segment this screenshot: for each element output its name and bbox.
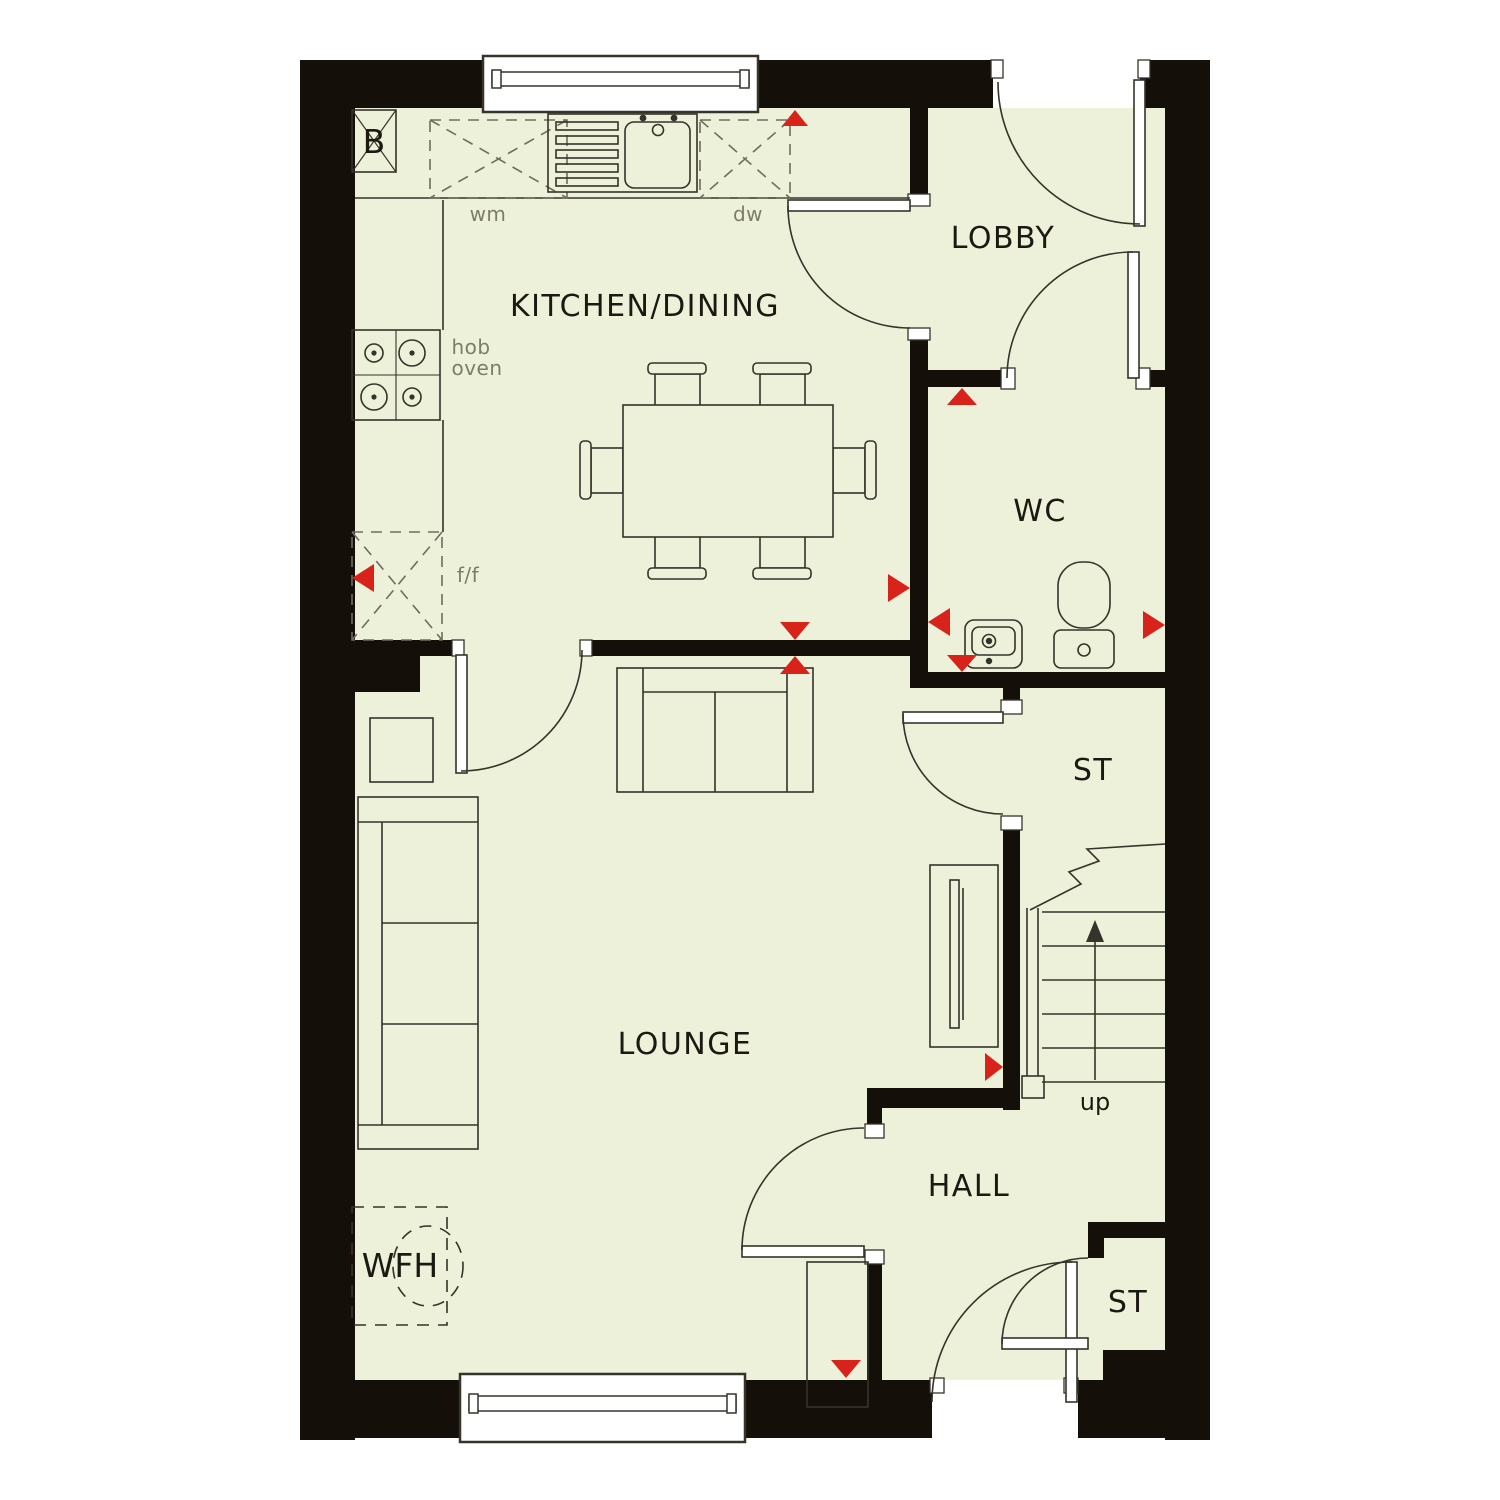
- wall-lobby-wc-a: [910, 370, 1013, 387]
- label-stairs-up: up: [1080, 1088, 1110, 1116]
- kitchen-lounge-door-leaf: [456, 655, 467, 773]
- tap-dot: [671, 115, 676, 120]
- burner-dot: [372, 351, 376, 355]
- label-washing-machine: wm: [470, 202, 507, 226]
- store-hall-door-leaf: [1002, 1338, 1088, 1349]
- wall-kitchen-lounge-a: [355, 640, 462, 656]
- jamb: [1001, 816, 1022, 830]
- chair-seat: [655, 536, 700, 568]
- wall-wc-store: [910, 672, 1165, 688]
- lobby-entrance-threshold: [993, 60, 1140, 108]
- jamb: [865, 1124, 884, 1138]
- wall-left: [300, 60, 355, 1440]
- basin-dot: [987, 659, 992, 664]
- jamb: [991, 60, 1003, 78]
- label-wfh: WFH: [362, 1246, 438, 1285]
- label-boiler: B: [363, 122, 386, 161]
- wc-door-leaf: [1128, 252, 1139, 378]
- chair-back: [753, 568, 811, 579]
- wall-bottom-b: [745, 1380, 932, 1438]
- kitchen-window-glazing: [492, 72, 749, 86]
- chair-seat: [655, 374, 700, 406]
- jamb: [908, 194, 930, 206]
- wall-lounge-hall-top: [867, 1088, 1020, 1108]
- room-label-wc: WC: [1013, 494, 1067, 529]
- room-label-hall: HALL: [928, 1169, 1011, 1204]
- kitchen-lobby-door-leaf: [788, 200, 910, 211]
- front-door-leaf: [1066, 1262, 1077, 1402]
- chair-seat: [591, 448, 623, 493]
- room-label-kitchen-dining: KITCHEN/DINING: [510, 289, 780, 324]
- chair-back: [648, 363, 706, 374]
- lounge-window-cap-left: [469, 1394, 478, 1413]
- lounge-hall-door-leaf: [742, 1246, 864, 1257]
- chair-back: [580, 441, 591, 499]
- wall-kitchen-lounge-b: [582, 640, 910, 656]
- floor-plan-page: KITCHEN/DINING LOBBY WC ST LOUNGE HALL S…: [0, 0, 1500, 1500]
- room-label-store-hall: ST: [1108, 1285, 1148, 1320]
- jamb: [1138, 60, 1150, 78]
- kitchen-window-cap-right: [740, 70, 749, 88]
- label-fridge-freezer: f/f: [457, 563, 480, 587]
- label-oven: oven: [451, 356, 502, 380]
- wall-top-b: [758, 60, 993, 108]
- burner-dot: [410, 351, 414, 355]
- jamb: [1001, 700, 1022, 714]
- kitchen-window-cap-left: [492, 70, 501, 88]
- label-dishwasher: dw: [733, 202, 763, 226]
- room-label-lounge: LOUNGE: [618, 1027, 753, 1062]
- room-label-lobby: LOBBY: [951, 221, 1056, 256]
- wall-bottom-st-block: [1103, 1350, 1165, 1438]
- chair-back: [648, 568, 706, 579]
- jamb: [452, 640, 464, 656]
- burner-dot: [372, 395, 376, 399]
- wall-kitchen-lounge-block: [355, 656, 420, 692]
- chair-back: [753, 363, 811, 374]
- basin-drain-dot: [987, 639, 992, 644]
- wall-lounge-store: [1003, 818, 1020, 1110]
- front-door-threshold: [932, 1380, 1078, 1438]
- chair-seat: [833, 448, 865, 493]
- wall-hall-st-top: [1088, 1222, 1165, 1238]
- jamb: [1001, 368, 1015, 389]
- wall-hall-st-stub: [1088, 1238, 1104, 1258]
- chair-back: [865, 441, 876, 499]
- store-mid-door-leaf: [903, 712, 1003, 723]
- tap-dot: [640, 115, 645, 120]
- chair-seat: [760, 536, 805, 568]
- wall-right: [1165, 60, 1210, 1440]
- dining-table: [623, 405, 833, 537]
- wall-kitchen-lobby-upper: [910, 108, 928, 206]
- wall-top-a: [355, 60, 483, 108]
- wall-lounge-hall-b: [867, 1252, 882, 1382]
- jamb: [908, 328, 930, 340]
- lounge-window-cap-right: [727, 1394, 736, 1413]
- lounge-window-glazing: [469, 1396, 736, 1411]
- wall-bottom-a: [300, 1380, 460, 1438]
- wall-bottom-stub: [1078, 1380, 1103, 1438]
- floor-plan: KITCHEN/DINING LOBBY WC ST LOUNGE HALL S…: [0, 0, 1500, 1500]
- burner-dot: [410, 395, 414, 399]
- lobby-entrance-door-leaf: [1134, 80, 1145, 226]
- room-label-store-mid: ST: [1073, 753, 1113, 788]
- chair-seat: [760, 374, 805, 406]
